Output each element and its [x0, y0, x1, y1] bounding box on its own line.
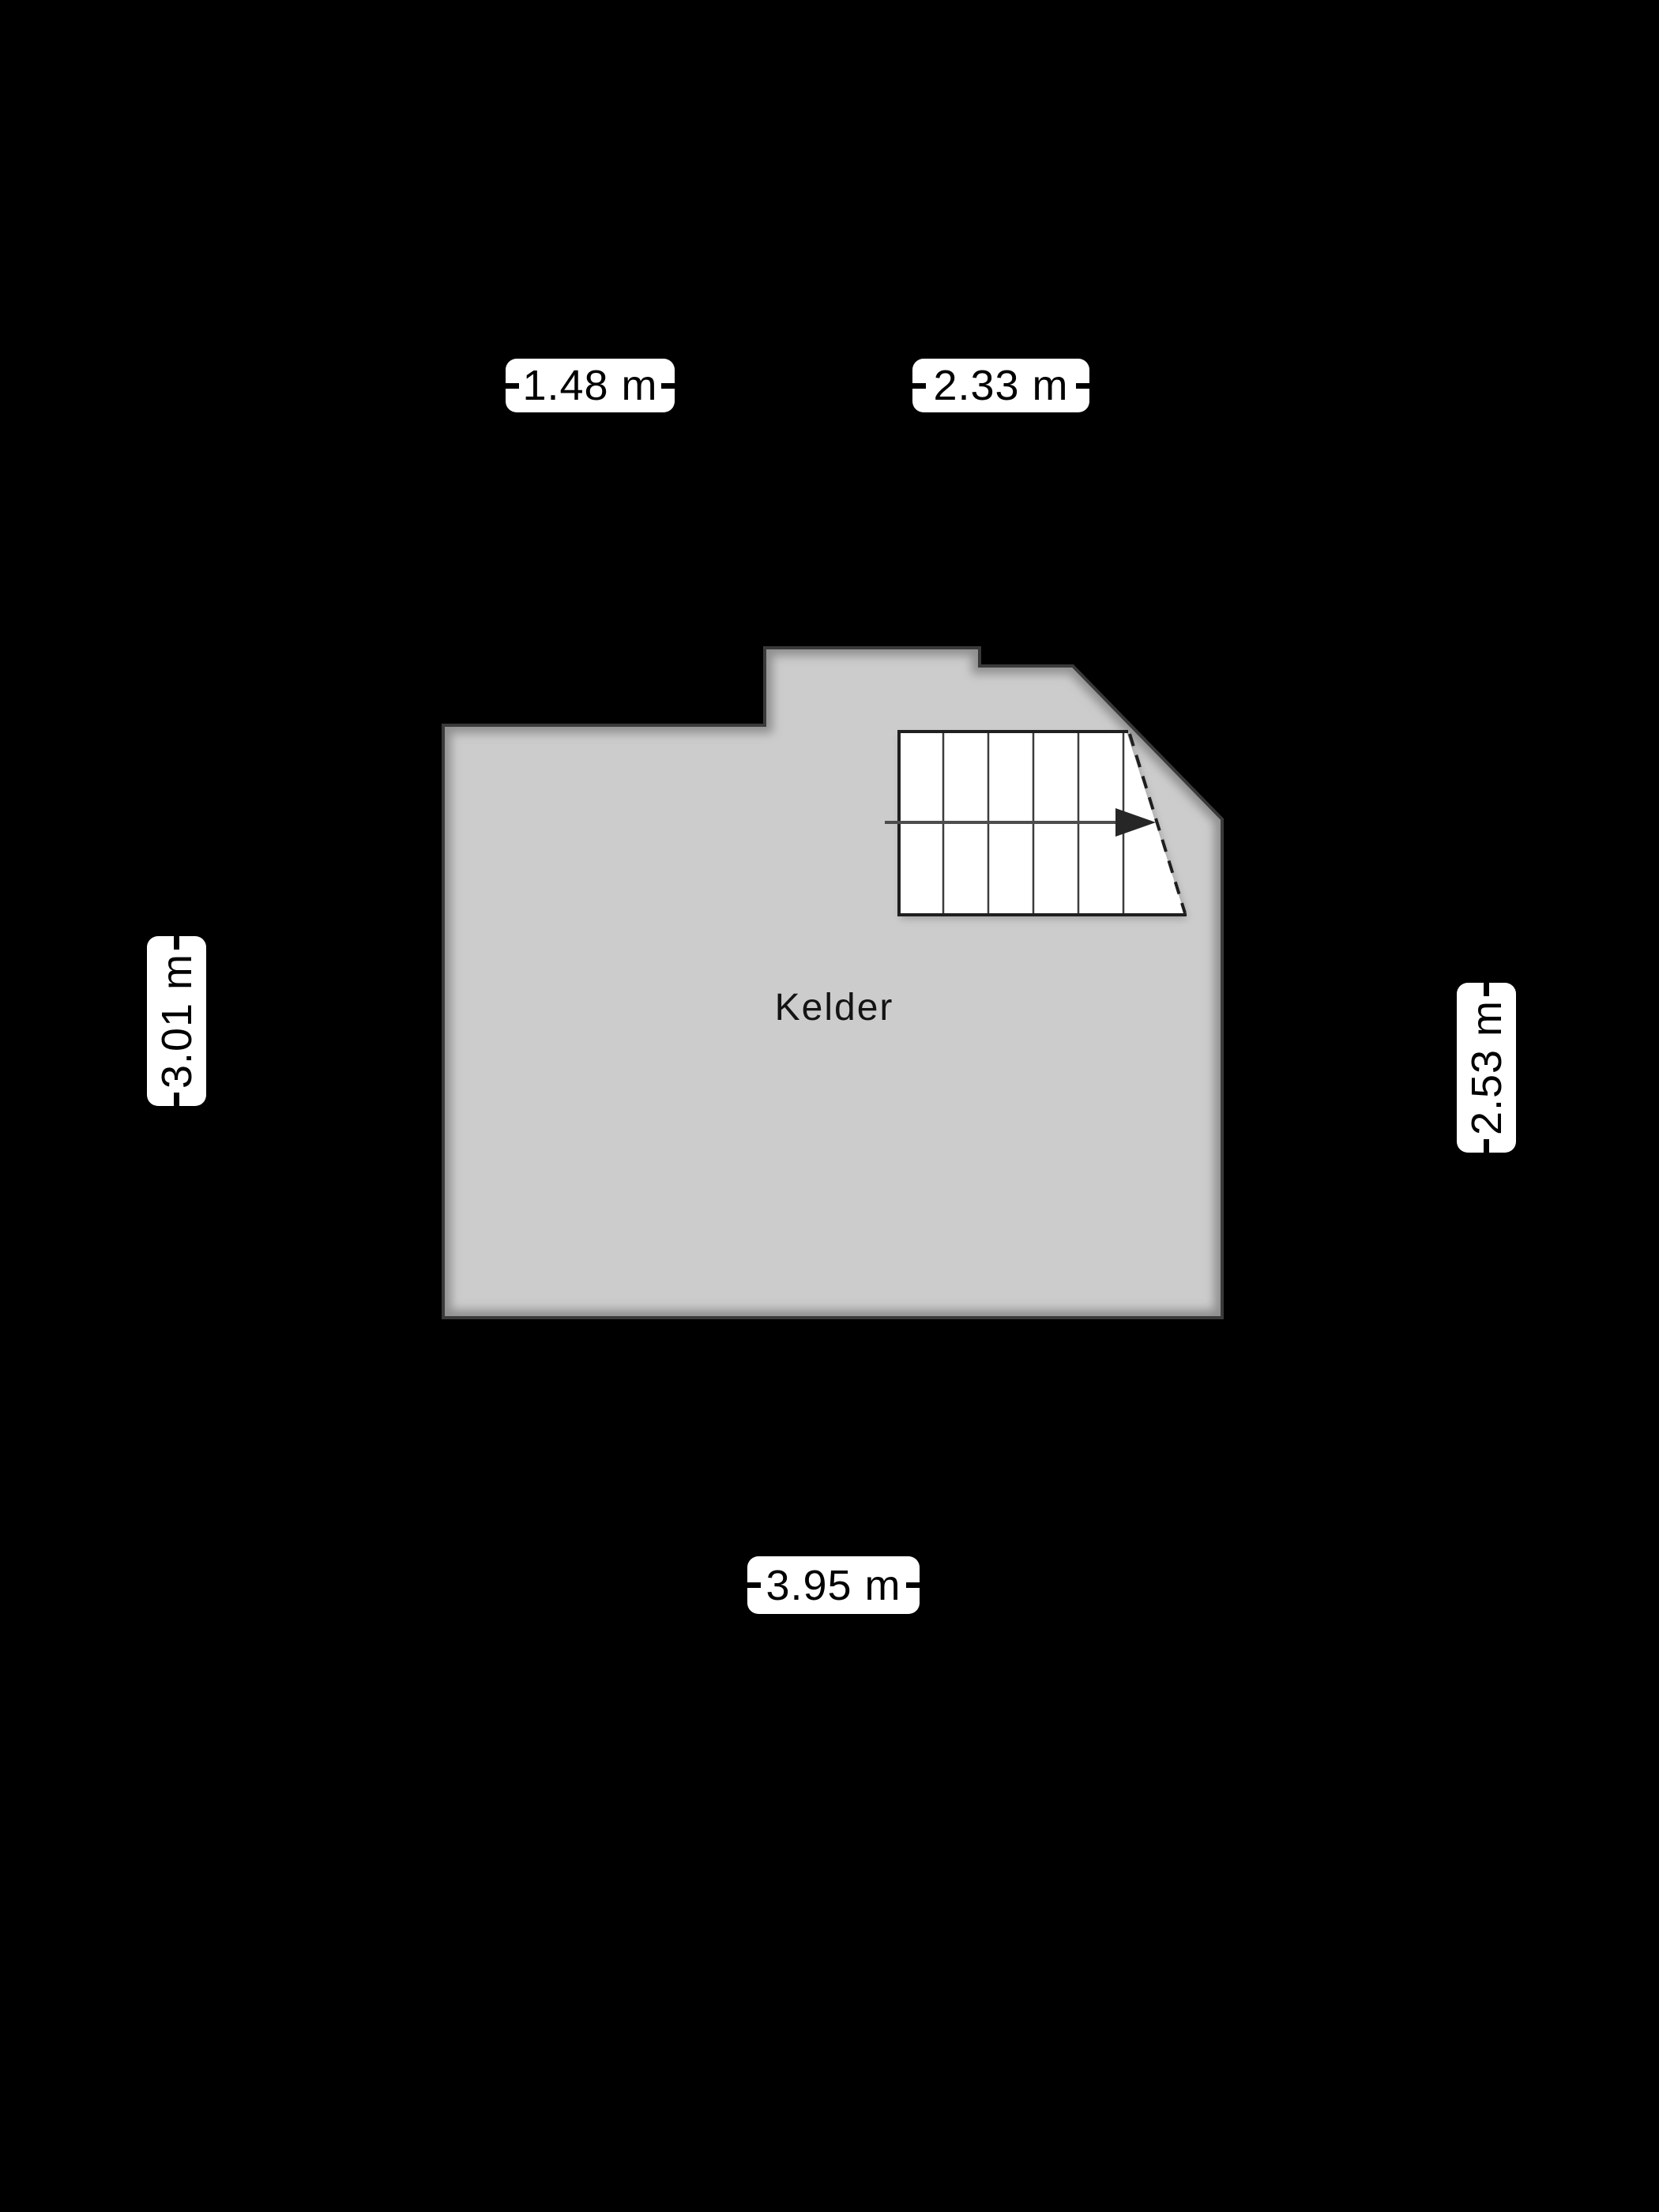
room-label-kelder: Kelder: [755, 989, 913, 1027]
floorplan-drawing: [0, 0, 1659, 2212]
dimension-value: 2.53 m: [1465, 1000, 1508, 1135]
floorplan-canvas: Kelder 1.48 m 2.33 m 3.01 m 2.53 m 3.95 …: [0, 0, 1659, 2212]
dimension-value: 3.95 m: [766, 1564, 901, 1607]
dimension-tick: [905, 383, 926, 389]
dimension-value: 1.48 m: [522, 364, 657, 407]
dimension-tick: [1484, 976, 1489, 996]
dimension-label-top-left: 1.48 m: [506, 359, 675, 412]
dimension-label-right: 2.53 m: [1457, 983, 1516, 1153]
dimension-tick: [174, 929, 179, 950]
dimension-value: 3.01 m: [156, 954, 198, 1089]
dimension-tick: [906, 1582, 927, 1588]
dimension-label-bottom: 3.95 m: [747, 1556, 920, 1614]
dimension-tick: [661, 383, 682, 389]
dimension-label-top-right: 2.33 m: [912, 359, 1089, 412]
dimension-tick: [174, 1093, 179, 1113]
dimension-tick: [1484, 1139, 1489, 1160]
dimension-tick: [498, 383, 519, 389]
dimension-tick: [1076, 383, 1097, 389]
dimension-label-left: 3.01 m: [147, 936, 206, 1106]
dimension-value: 2.33 m: [933, 364, 1068, 407]
dimension-tick: [740, 1582, 761, 1588]
